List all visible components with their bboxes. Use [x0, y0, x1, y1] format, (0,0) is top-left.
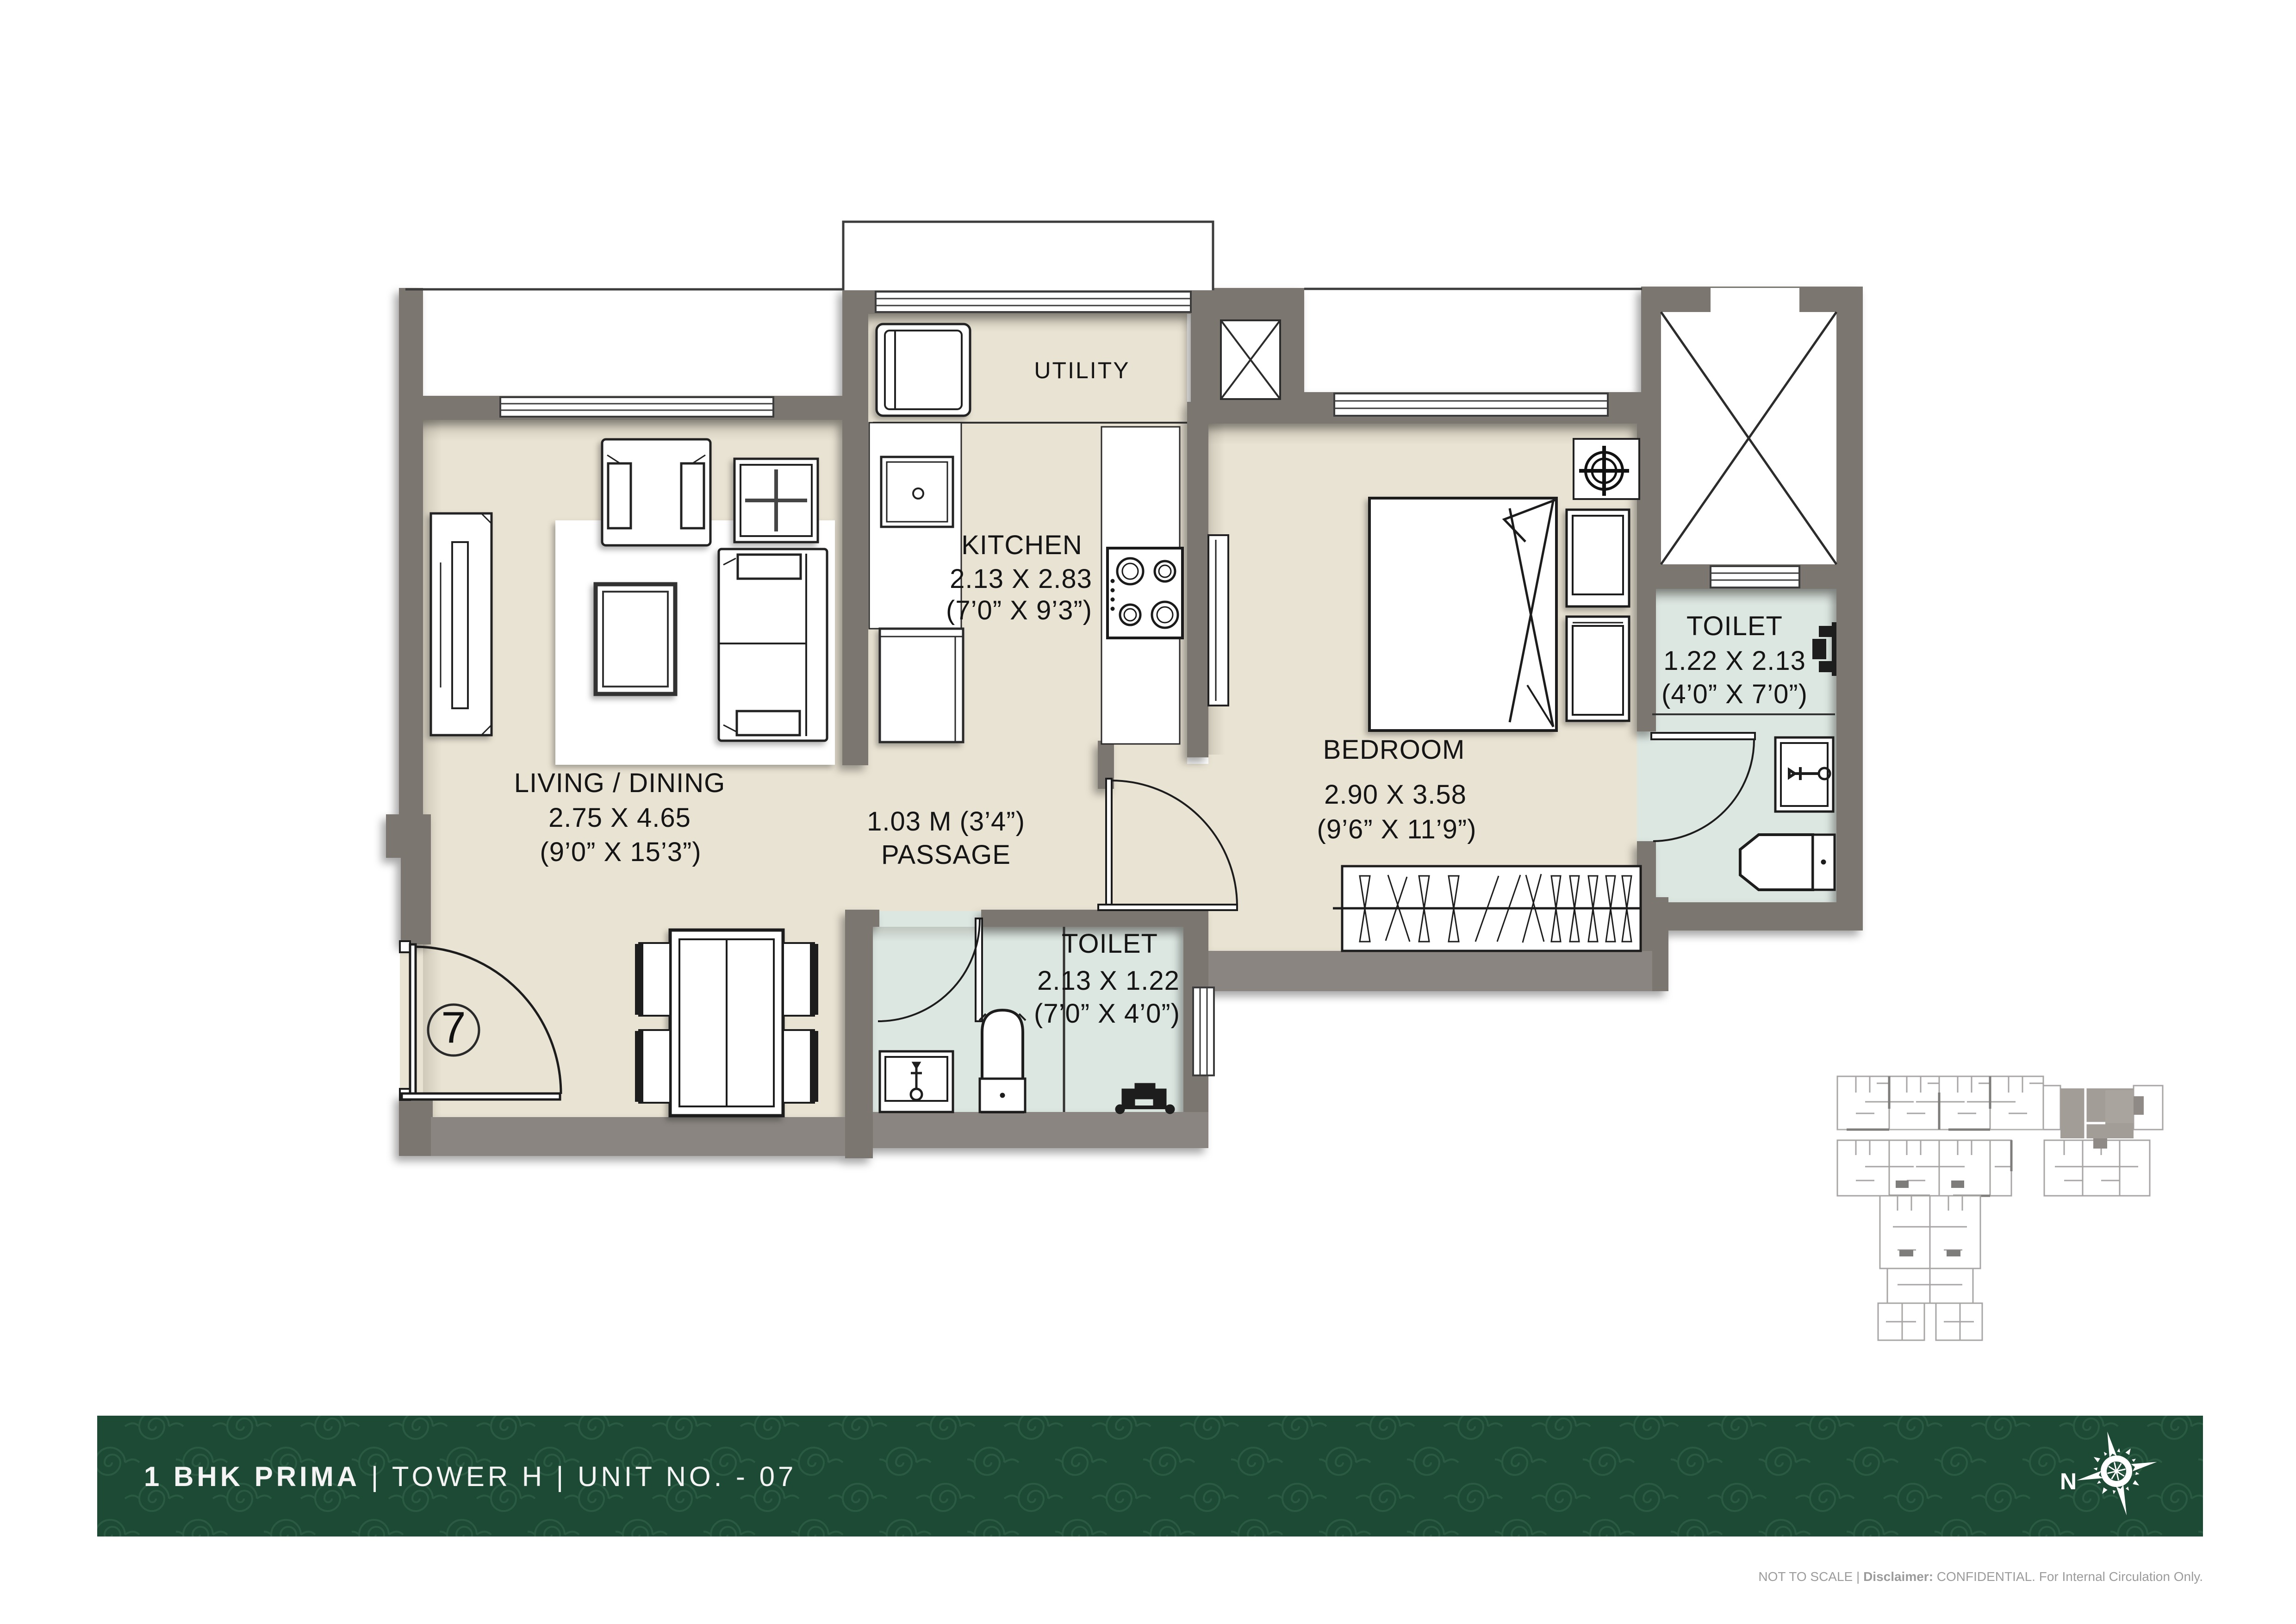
svg-text:2.90 X 3.58: 2.90 X 3.58	[1324, 780, 1467, 810]
svg-text:LIVING / DINING: LIVING / DINING	[514, 768, 726, 798]
svg-text:2.13 X 2.83: 2.13 X 2.83	[950, 564, 1092, 594]
svg-text:2.75 X 4.65: 2.75 X 4.65	[548, 803, 691, 833]
svg-text:(4’0” X 7’0”): (4’0” X 7’0”)	[1661, 679, 1808, 709]
svg-text:1.03 M (3’4”): 1.03 M (3’4”)	[867, 806, 1025, 837]
svg-text:N: N	[2060, 1468, 2077, 1494]
svg-text:NOT TO SCALE | Disclaimer: CON: NOT TO SCALE | Disclaimer: CONFIDENTIAL.…	[1758, 1569, 2203, 1584]
svg-text:BEDROOM: BEDROOM	[1323, 735, 1465, 765]
svg-text:(7’0” X 4’0”): (7’0” X 4’0”)	[1034, 999, 1180, 1029]
svg-text:(7’0” X 9’3”): (7’0” X 9’3”)	[946, 595, 1092, 625]
svg-text:1 BHK PRIMA | TOWER H | UNIT N: 1 BHK PRIMA | TOWER H | UNIT NO. - 07	[144, 1461, 796, 1492]
svg-text:(9’0” X 15’3”): (9’0” X 15’3”)	[540, 837, 701, 867]
svg-text:KITCHEN: KITCHEN	[961, 530, 1083, 560]
svg-text:TOILET: TOILET	[1686, 611, 1783, 641]
svg-text:UTILITY: UTILITY	[1034, 357, 1130, 383]
svg-text:TOILET: TOILET	[1062, 929, 1158, 959]
svg-text:2.13 X 1.22: 2.13 X 1.22	[1037, 966, 1180, 996]
svg-text:(9’6” X 11’9”): (9’6” X 11’9”)	[1317, 814, 1477, 844]
svg-text:PASSAGE: PASSAGE	[881, 840, 1011, 870]
svg-text:1.22 X 2.13: 1.22 X 2.13	[1663, 646, 1806, 676]
svg-text:7: 7	[441, 1003, 466, 1052]
